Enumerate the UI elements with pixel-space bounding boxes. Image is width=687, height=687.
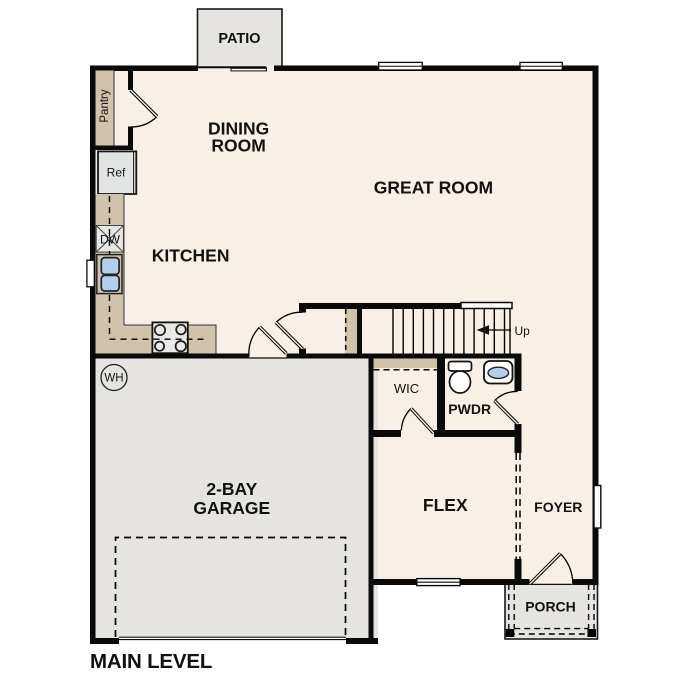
svg-text:FOYER: FOYER	[534, 499, 582, 515]
svg-text:PORCH: PORCH	[525, 598, 576, 614]
svg-text:Up: Up	[515, 324, 531, 338]
svg-text:Ref: Ref	[107, 166, 126, 180]
svg-text:MAIN LEVEL: MAIN LEVEL	[90, 650, 212, 673]
svg-text:WH: WH	[104, 373, 123, 385]
svg-text:KITCHEN: KITCHEN	[152, 245, 230, 265]
svg-text:FLEX: FLEX	[423, 495, 468, 515]
svg-text:WIC: WIC	[394, 381, 419, 396]
svg-text:PWDR: PWDR	[448, 401, 491, 417]
svg-text:GREAT ROOM: GREAT ROOM	[374, 178, 493, 198]
svg-text:2-BAY: 2-BAY	[206, 479, 257, 499]
svg-text:Pantry: Pantry	[99, 89, 111, 122]
svg-text:GARAGE: GARAGE	[193, 498, 270, 518]
svg-text:ROOM: ROOM	[211, 135, 265, 155]
svg-text:PATIO: PATIO	[218, 31, 260, 47]
svg-text:DW: DW	[100, 232, 121, 246]
